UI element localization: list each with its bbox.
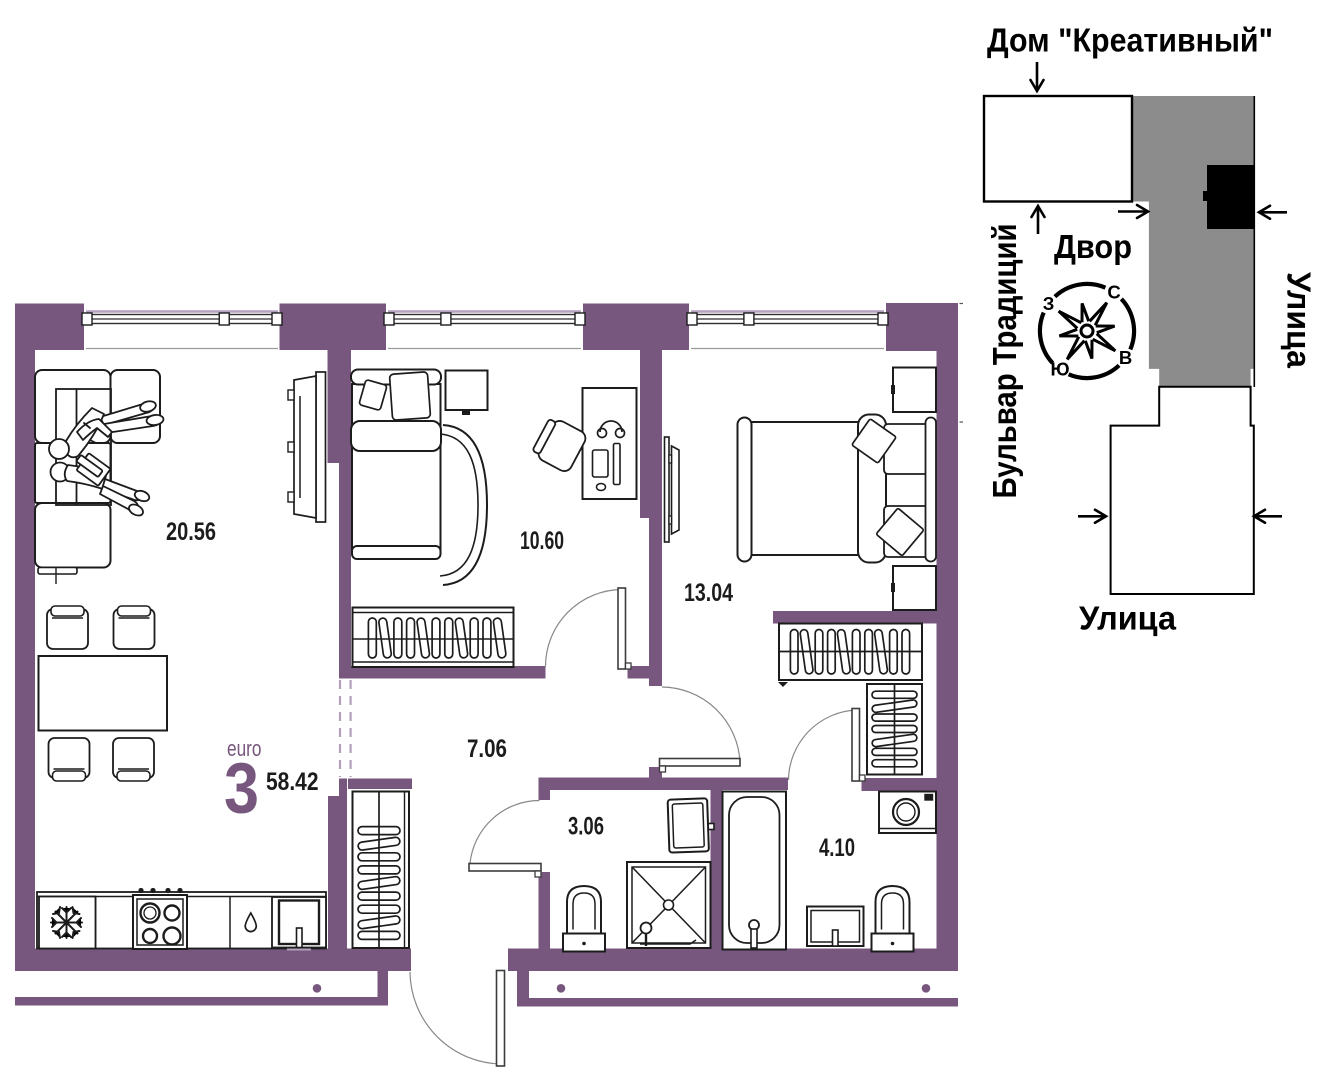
svg-text:3: 3 bbox=[224, 750, 259, 829]
svg-text:10.60: 10.60 bbox=[520, 527, 564, 555]
svg-text:С: С bbox=[1107, 282, 1120, 303]
svg-text:58.42: 58.42 bbox=[266, 768, 319, 796]
svg-text:В: В bbox=[1119, 347, 1132, 368]
svg-text:Двор: Двор bbox=[1054, 228, 1132, 265]
svg-text:З: З bbox=[1043, 293, 1055, 314]
svg-text:Дом "Креативный": Дом "Креативный" bbox=[987, 22, 1273, 59]
svg-text:13.04: 13.04 bbox=[684, 579, 733, 607]
svg-text:Улица: Улица bbox=[1281, 272, 1318, 369]
svg-text:4.10: 4.10 bbox=[819, 834, 855, 862]
svg-text:Ю: Ю bbox=[1050, 359, 1069, 380]
svg-text:7.06: 7.06 bbox=[467, 735, 507, 763]
svg-text:Бульвар Традиций: Бульвар Традиций bbox=[986, 224, 1023, 499]
svg-text:Улица: Улица bbox=[1079, 600, 1177, 637]
svg-text:3.06: 3.06 bbox=[568, 813, 604, 841]
svg-text:20.56: 20.56 bbox=[166, 518, 216, 546]
